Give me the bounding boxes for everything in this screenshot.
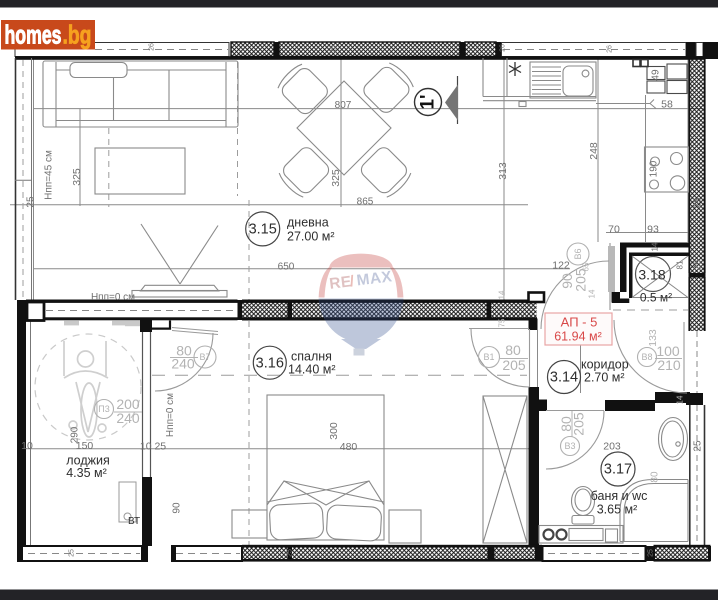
svg-text:205: 205 — [571, 412, 587, 436]
svg-text:480: 480 — [340, 441, 358, 453]
svg-text:26: 26 — [331, 45, 338, 53]
svg-text:14: 14 — [676, 395, 685, 404]
svg-text:210: 210 — [657, 357, 681, 373]
svg-text:25: 25 — [693, 197, 704, 209]
svg-text:.bg: .bg — [63, 20, 92, 50]
svg-text:Hпп=0 см: Hпп=0 см — [91, 292, 135, 303]
svg-text:25: 25 — [69, 549, 76, 557]
svg-text:313: 313 — [497, 162, 509, 180]
svg-text:325: 325 — [330, 169, 342, 187]
svg-text:4.35 м²: 4.35 м² — [66, 466, 107, 480]
svg-text:3.18: 3.18 — [638, 267, 665, 283]
svg-text:14: 14 — [651, 242, 660, 251]
svg-text:61.94 м²: 61.94 м² — [554, 330, 602, 344]
svg-text:70: 70 — [608, 224, 620, 236]
svg-text:В8: В8 — [641, 352, 652, 362]
svg-text:В7: В7 — [199, 352, 210, 362]
svg-text:3.15: 3.15 — [249, 222, 277, 238]
svg-text:865: 865 — [357, 197, 374, 208]
svg-text:дневна: дневна — [287, 216, 329, 230]
svg-text:205: 205 — [502, 357, 526, 373]
svg-text:190: 190 — [649, 160, 660, 177]
svg-text:спалня: спалня — [291, 350, 332, 364]
svg-text:коридор: коридор — [581, 358, 629, 372]
svg-text:80: 80 — [650, 471, 661, 483]
svg-text:3.16: 3.16 — [256, 355, 284, 371]
svg-text:90: 90 — [172, 502, 183, 514]
svg-text:203: 203 — [603, 441, 621, 453]
svg-text:homes: homes — [5, 20, 62, 50]
svg-text:Hпп=0 см: Hпп=0 см — [165, 393, 176, 437]
svg-text:133: 133 — [647, 329, 659, 347]
svg-text:93: 93 — [647, 224, 659, 236]
svg-text:14.40 м²: 14.40 м² — [288, 363, 336, 377]
svg-text:П3: П3 — [98, 404, 109, 414]
svg-text:58: 58 — [661, 99, 673, 111]
svg-text:10: 10 — [21, 440, 33, 452]
svg-text:14: 14 — [588, 289, 597, 298]
svg-text:АП - 5: АП - 5 — [561, 315, 598, 330]
svg-text:В1: В1 — [483, 352, 494, 362]
svg-text:325: 325 — [71, 168, 83, 186]
svg-text:25: 25 — [648, 549, 655, 557]
svg-text:0.5 м²: 0.5 м² — [640, 291, 672, 305]
svg-text:80: 80 — [505, 342, 521, 358]
svg-text:290: 290 — [70, 426, 81, 443]
svg-text:75: 75 — [498, 318, 507, 327]
svg-text:25: 25 — [287, 549, 294, 557]
svg-text:248: 248 — [588, 142, 600, 160]
svg-text:27.00 м²: 27.00 м² — [287, 230, 335, 244]
svg-text:В3: В3 — [564, 441, 575, 451]
svg-text:3.17: 3.17 — [604, 462, 632, 478]
svg-text:26: 26 — [607, 45, 614, 53]
svg-text:25: 25 — [693, 259, 704, 271]
svg-text:49: 49 — [651, 69, 662, 81]
svg-text:650: 650 — [278, 262, 295, 273]
svg-text:807: 807 — [335, 100, 352, 111]
svg-text:300: 300 — [328, 422, 340, 440]
svg-text:10 25: 10 25 — [140, 441, 166, 453]
svg-text:2.70 м²: 2.70 м² — [584, 371, 625, 385]
svg-text:122: 122 — [552, 260, 570, 272]
svg-text:26: 26 — [149, 43, 156, 51]
svg-text:ВТ: ВТ — [128, 516, 140, 527]
svg-text:14: 14 — [498, 290, 507, 299]
svg-text:25: 25 — [693, 440, 704, 452]
svg-text:В6: В6 — [573, 248, 583, 259]
svg-text:1': 1' — [418, 94, 439, 109]
svg-text:26: 26 — [500, 44, 507, 52]
svg-text:Hпп=45 см: Hпп=45 см — [44, 150, 55, 200]
svg-text:баня и wc: баня и wc — [591, 489, 648, 503]
svg-text:3.14: 3.14 — [550, 370, 578, 386]
svg-text:25: 25 — [26, 196, 37, 208]
svg-text:3.65 м²: 3.65 м² — [597, 503, 638, 517]
